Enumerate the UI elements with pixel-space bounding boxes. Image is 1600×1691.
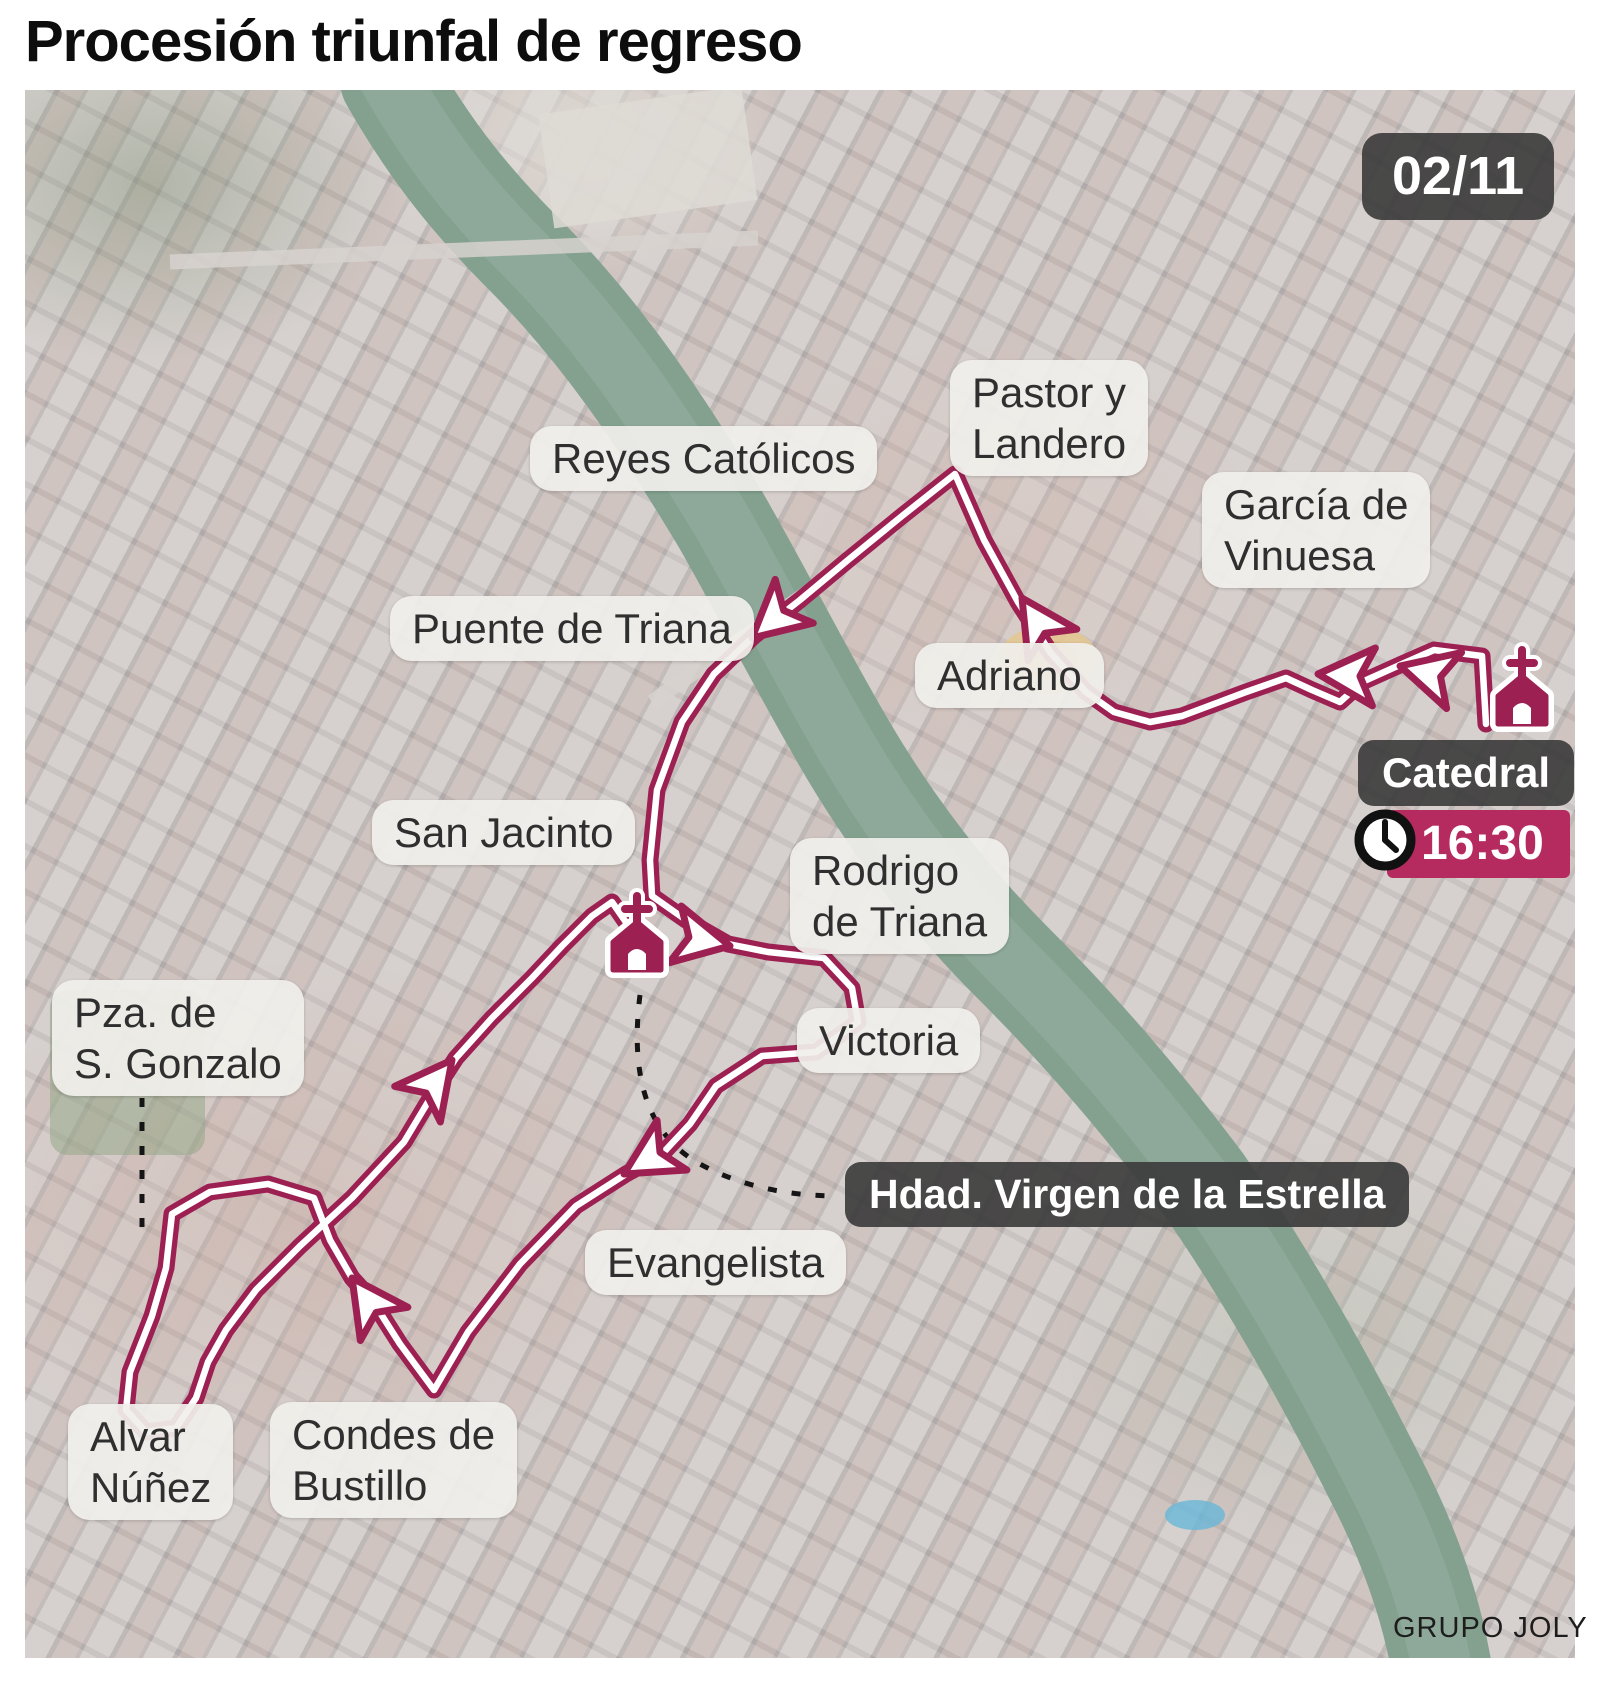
street-label-garcia-de-vinuesa: García deVinuesa — [1202, 472, 1430, 588]
destination-badge: Catedral — [1358, 740, 1574, 806]
credit: GRUPO JOLY — [1393, 1612, 1588, 1645]
street-label-evangelista: Evangelista — [585, 1230, 846, 1295]
clock-icon — [1353, 808, 1417, 872]
arrival-time-badge: 16:30 — [1387, 810, 1570, 878]
brotherhood-badge: Hdad. Virgen de la Estrella — [845, 1162, 1409, 1227]
street-label-condes-de-bustillo: Condes deBustillo — [270, 1402, 517, 1518]
street-label-reyes-catolicos: Reyes Católicos — [530, 426, 877, 491]
date-badge: 02/11 — [1362, 133, 1554, 220]
street-label-pza-de-s-gonzalo: Pza. deS. Gonzalo — [52, 980, 304, 1096]
arrival-time: 16:30 — [1421, 817, 1544, 870]
page-title: Procesión triunfal de regreso — [25, 8, 802, 75]
street-label-alvar-nunez: AlvarNúñez — [68, 1404, 233, 1520]
procession-infographic: Procesión triunfal de regreso Reyes Cató — [0, 0, 1600, 1691]
street-label-puente-de-triana: Puente de Triana — [390, 596, 754, 661]
street-label-san-jacinto: San Jacinto — [372, 800, 635, 865]
street-label-pastor-y-landero: Pastor yLandero — [950, 360, 1148, 476]
street-label-rodrigo-de-triana: Rodrigode Triana — [790, 838, 1009, 954]
street-label-adriano: Adriano — [915, 643, 1104, 708]
street-label-victoria: Victoria — [797, 1008, 980, 1073]
